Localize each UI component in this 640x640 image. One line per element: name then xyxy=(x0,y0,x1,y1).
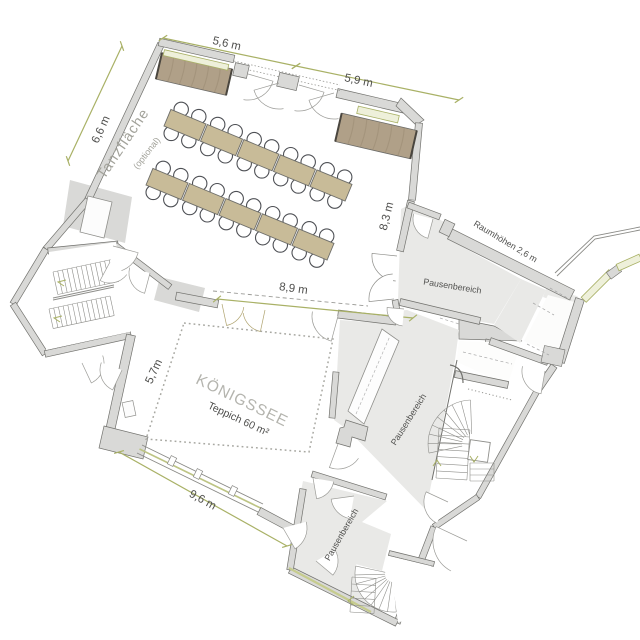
svg-text:9,6 m: 9,6 m xyxy=(187,488,218,512)
svg-text:5,6 m: 5,6 m xyxy=(211,35,242,53)
svg-text:6,6 m: 6,6 m xyxy=(90,114,113,145)
svg-text:5,7m: 5,7m xyxy=(143,358,165,386)
svg-text:5,9 m: 5,9 m xyxy=(343,72,374,90)
